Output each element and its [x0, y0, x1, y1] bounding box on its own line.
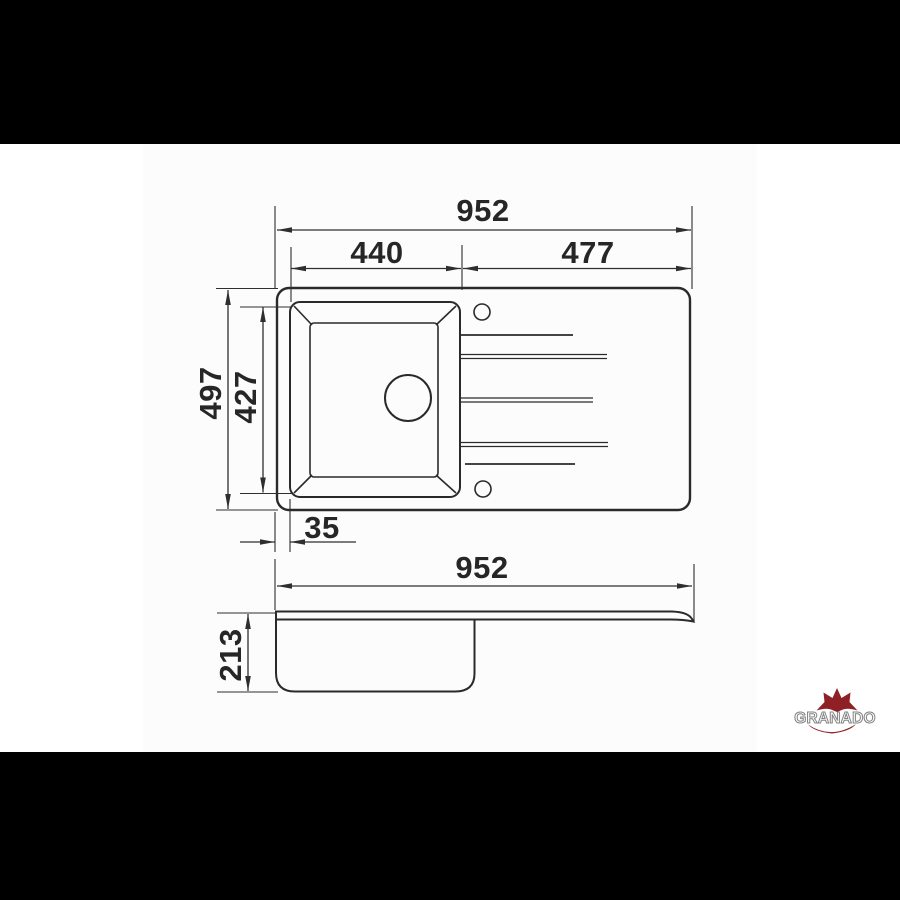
letterbox-bottom	[0, 752, 900, 900]
screenshot-root: 952 440 477 497 427 35	[0, 0, 900, 900]
dim-drainer-width-label: 477	[561, 235, 614, 270]
dim-side-width-label: 952	[455, 550, 508, 585]
dim-total-depth-label: 497	[193, 366, 228, 419]
dim-bowl-depth-label: 427	[228, 370, 263, 423]
dim-rim-offset-label: 35	[304, 510, 339, 545]
brand-name: GRANADO	[794, 710, 875, 727]
sink-technical-drawing: 952 440 477 497 427 35	[0, 0, 900, 900]
dim-bowl-width-label: 440	[350, 235, 403, 270]
letterbox-top	[0, 0, 900, 144]
dim-total-width-label: 952	[456, 193, 509, 228]
dim-bowl-height-label: 213	[213, 628, 248, 681]
